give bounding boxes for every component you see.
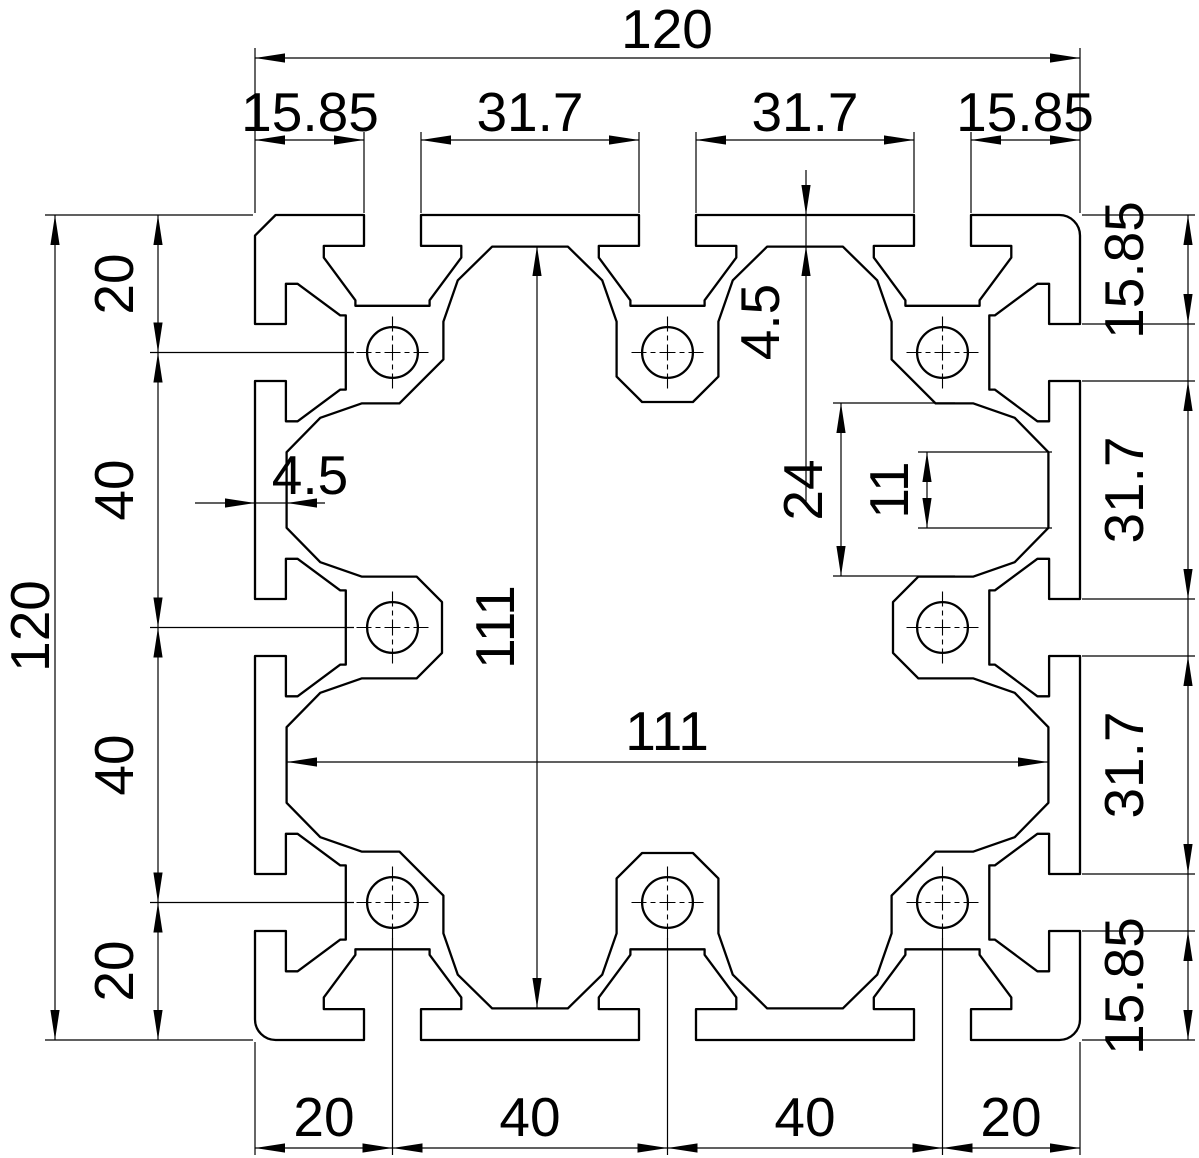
- dim-left-lip-depth: 4.5: [272, 444, 348, 506]
- dim-top-seg-2: 31.7: [476, 81, 583, 143]
- dimension-arrowheads-icon: [50, 53, 1192, 1152]
- dim-right-chain-4: 15.85: [1093, 917, 1155, 1055]
- dim-top-lip-depth: 4.5: [729, 284, 791, 360]
- profile-drawing-svg: 120 15.85 31.7 31.7 15.85 4.5 120 20 40 …: [0, 0, 1199, 1158]
- dim-left-chain-4: 20: [83, 940, 145, 1001]
- dim-bottom-chain-2: 40: [499, 1086, 560, 1148]
- dim-core-height: 111: [464, 585, 526, 669]
- hole-centerlines-icon: [357, 317, 979, 939]
- drawing-canvas: 120 15.85 31.7 31.7 15.85 4.5 120 20 40 …: [0, 0, 1199, 1158]
- dim-left-chain-3: 40: [83, 734, 145, 795]
- dim-left-chain-2: 40: [83, 459, 145, 520]
- dim-right-chain-1: 15.85: [1093, 201, 1155, 339]
- dim-top-seg-4: 15.85: [956, 81, 1094, 143]
- profile-geometry: [255, 215, 1080, 1040]
- dim-bottom-chain-1: 20: [293, 1086, 354, 1148]
- dim-top-total: 120: [621, 0, 713, 60]
- dim-bottom-chain-4: 20: [980, 1086, 1041, 1148]
- inner-cavity-contour: [287, 247, 1049, 1009]
- dim-left-chain-1: 20: [83, 253, 145, 314]
- dim-top-seg-3: 31.7: [751, 81, 858, 143]
- dim-bottom-chain-3: 40: [774, 1086, 835, 1148]
- dim-right-boss-gap: 24: [772, 459, 834, 520]
- dim-left-total: 120: [0, 580, 61, 672]
- dim-top-seg-1: 15.85: [241, 81, 379, 143]
- screw-holes: [367, 327, 968, 928]
- dim-right-chain-2: 31.7: [1093, 436, 1155, 543]
- dim-right-rib-width: 11: [858, 461, 920, 518]
- dim-right-chain-3: 31.7: [1093, 711, 1155, 818]
- dim-core-width: 111: [625, 700, 709, 762]
